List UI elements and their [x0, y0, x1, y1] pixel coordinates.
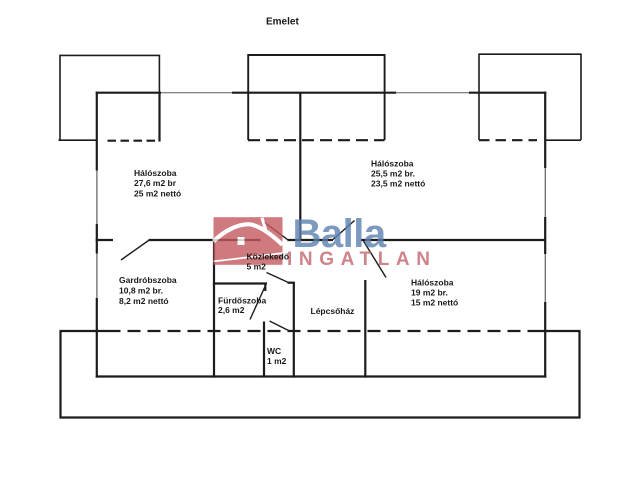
- svg-text:Hálószoba: Hálószoba: [134, 168, 177, 178]
- svg-text:Lépcsőház: Lépcsőház: [311, 306, 355, 316]
- svg-text:1 m2: 1 m2: [267, 356, 287, 366]
- svg-text:25 m2 nettó: 25 m2 nettó: [134, 188, 181, 198]
- svg-text:2,6 m2: 2,6 m2: [218, 305, 245, 315]
- svg-text:15 m2 nettó: 15 m2 nettó: [411, 298, 458, 308]
- svg-text:27,6 m2 br: 27,6 m2 br: [134, 178, 177, 188]
- svg-text:Hálószoba: Hálószoba: [371, 158, 414, 168]
- svg-text:Emelet: Emelet: [266, 17, 299, 28]
- svg-text:Fürdőszoba: Fürdőszoba: [218, 295, 266, 305]
- svg-text:23,5 m2 nettó: 23,5 m2 nettó: [371, 179, 425, 189]
- svg-text:Gardróbszoba: Gardróbszoba: [119, 275, 177, 285]
- svg-text:Közlekedő: Közlekedő: [247, 252, 290, 262]
- svg-text:19 m2 br.: 19 m2 br.: [411, 287, 448, 297]
- svg-text:8,2 m2 nettó: 8,2 m2 nettó: [119, 296, 169, 306]
- svg-text:10,8 m2 br.: 10,8 m2 br.: [119, 286, 163, 296]
- svg-text:WC: WC: [267, 346, 281, 356]
- svg-text:INGATLAN: INGATLAN: [287, 249, 437, 270]
- svg-text:Hálószoba: Hálószoba: [411, 277, 454, 287]
- svg-text:25,5 m2 br.: 25,5 m2 br.: [371, 169, 415, 179]
- svg-text:5 m2: 5 m2: [247, 262, 267, 272]
